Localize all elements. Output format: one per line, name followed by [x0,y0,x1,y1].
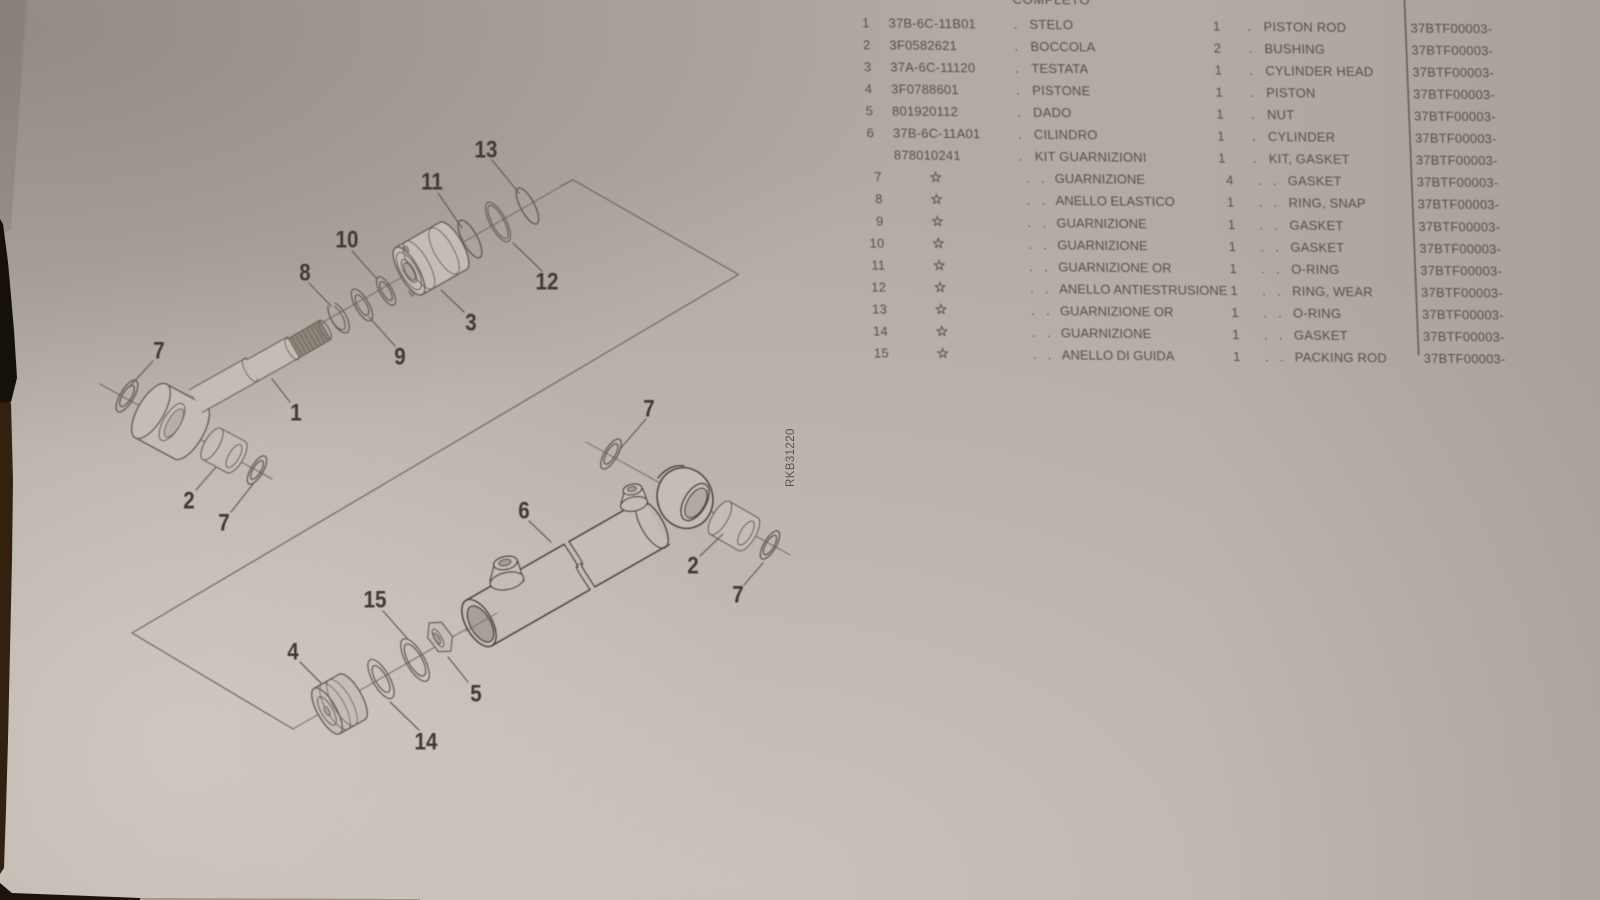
svg-text:3: 3 [864,59,872,74]
svg-text:6: 6 [518,497,529,524]
svg-text:GUARNIZIONE OR: GUARNIZIONE OR [1060,303,1174,319]
svg-text:5: 5 [470,680,481,707]
svg-text:37BTF00003-: 37BTF00003- [1422,307,1504,323]
svg-text:.: . [1016,83,1020,98]
svg-text:801920112: 801920112 [892,104,958,120]
svg-text:12: 12 [871,279,886,294]
svg-text:.: . [1025,171,1029,186]
svg-text:CILINDRO: CILINDRO [1034,127,1098,143]
svg-text:7: 7 [218,509,229,536]
svg-text:37BTF00003-: 37BTF00003- [1416,153,1498,169]
svg-text:PISTONE: PISTONE [1032,83,1091,99]
svg-text:.: . [1046,303,1050,318]
svg-text:37BTF00003-: 37BTF00003- [1412,65,1494,81]
svg-text:PACKING ROD: PACKING ROD [1294,349,1387,365]
svg-text:1: 1 [1215,85,1223,100]
svg-text:37BTF00003-: 37BTF00003- [1420,263,1502,279]
svg-text:O-RING: O-RING [1291,261,1340,276]
svg-text:5: 5 [865,103,873,118]
svg-text:.: . [1276,261,1280,276]
svg-text:.: . [1252,129,1256,144]
svg-text:.: . [1250,85,1254,100]
svg-text:ANELLO ANTIESTRUSIONE: ANELLO ANTIESTRUSIONE [1059,281,1228,298]
svg-text:.: . [1262,283,1266,298]
svg-text:ANELLO DI GUIDA: ANELLO DI GUIDA [1061,347,1175,363]
svg-text:9: 9 [876,213,884,228]
svg-text:7: 7 [643,395,654,422]
svg-text:37BTF00003-: 37BTF00003- [1419,241,1501,257]
svg-text:PISTON ROD: PISTON ROD [1263,19,1346,35]
svg-text:RING, SNAP: RING, SNAP [1288,195,1366,211]
svg-text:RING, WEAR: RING, WEAR [1292,283,1373,299]
svg-text:11: 11 [871,257,886,272]
svg-text:GUARNIZIONE: GUARNIZIONE [1054,171,1145,187]
svg-text:37BTF00003-: 37BTF00003- [1416,175,1498,191]
svg-text:.: . [1026,193,1030,208]
svg-text:7: 7 [874,169,882,184]
svg-text:878010241: 878010241 [894,148,961,164]
svg-text:COMPLETO: COMPLETO [1012,0,1090,7]
svg-text:.: . [1272,173,1276,188]
svg-text:DADO: DADO [1033,105,1072,120]
svg-text:.: . [1031,303,1035,318]
svg-text:1: 1 [290,399,301,426]
svg-text:.: . [1261,261,1265,276]
svg-text:.: . [1040,171,1044,186]
svg-text:1: 1 [1227,217,1235,232]
svg-text:37BTF00003-: 37BTF00003- [1410,21,1492,37]
svg-text:37B-6C-11A01: 37B-6C-11A01 [893,126,981,142]
svg-text:1: 1 [1218,151,1226,166]
svg-text:.: . [1032,325,1036,340]
svg-text:.: . [1273,195,1277,210]
svg-text:7: 7 [732,581,743,608]
svg-text:15: 15 [364,586,387,613]
svg-text:37BTF00003-: 37BTF00003- [1417,197,1499,213]
svg-text:6: 6 [866,125,874,140]
svg-text:37BTF00003-: 37BTF00003- [1421,285,1503,301]
svg-text:.: . [1275,239,1279,254]
svg-text:BOCCOLA: BOCCOLA [1030,39,1096,55]
svg-text:1: 1 [1229,261,1237,276]
svg-text:.: . [1257,173,1261,188]
svg-text:GUARNIZIONE OR: GUARNIZIONE OR [1058,259,1172,275]
svg-text:KIT, GASKET: KIT, GASKET [1269,151,1351,167]
svg-text:13: 13 [475,136,498,163]
svg-text:.: . [1043,237,1047,252]
svg-text:O-RING: O-RING [1293,305,1342,320]
svg-text:.: . [1017,105,1021,120]
svg-text:.: . [1279,327,1283,342]
svg-text:.: . [1044,259,1048,274]
svg-text:.: . [1015,61,1019,76]
svg-text:37BTF00003-: 37BTF00003- [1418,219,1500,235]
svg-text:37BTF00003-: 37BTF00003- [1413,87,1495,103]
svg-text:1: 1 [1216,107,1224,122]
svg-text:1: 1 [1228,239,1236,254]
svg-text:.: . [1264,327,1268,342]
svg-text:.: . [1029,259,1033,274]
svg-text:KIT GUARNIZIONI: KIT GUARNIZIONI [1035,149,1147,165]
svg-text:4: 4 [864,81,872,96]
svg-text:GASKET: GASKET [1289,217,1344,233]
svg-text:.: . [1251,107,1255,122]
svg-text:13: 13 [872,301,887,316]
svg-text:37BTF00003-: 37BTF00003- [1411,43,1493,59]
svg-text:.: . [1041,193,1045,208]
svg-text:1: 1 [1231,305,1239,320]
svg-text:.: . [1047,347,1051,362]
svg-text:GASKET: GASKET [1290,239,1345,255]
svg-text:GUARNIZIONE: GUARNIZIONE [1061,325,1152,341]
svg-text:.: . [1045,281,1049,296]
svg-text:.: . [1028,237,1032,252]
svg-text:3: 3 [465,309,476,336]
svg-text:.: . [1259,217,1263,232]
svg-text:14: 14 [873,323,888,338]
svg-text:10: 10 [336,226,359,253]
svg-text:1: 1 [1213,19,1221,34]
svg-text:8: 8 [875,191,883,206]
svg-text:ANELLO ELASTICO: ANELLO ELASTICO [1055,193,1175,209]
svg-text:3F0582621: 3F0582621 [889,38,957,54]
svg-text:.: . [1260,239,1264,254]
svg-text:GUARNIZIONE: GUARNIZIONE [1056,215,1147,231]
svg-text:NUT: NUT [1267,107,1295,122]
svg-text:.: . [1278,305,1282,320]
svg-text:.: . [1032,347,1036,362]
svg-text:.: . [1264,349,1268,364]
svg-text:1: 1 [1233,349,1241,364]
svg-text:.: . [1019,149,1023,164]
svg-text:.: . [1263,305,1267,320]
svg-text:.: . [1018,127,1022,142]
svg-text:1: 1 [1227,195,1235,210]
svg-text:8: 8 [299,259,310,286]
svg-text:PISTON: PISTON [1266,85,1316,100]
svg-text:9: 9 [394,343,405,370]
svg-text:.: . [1279,349,1283,364]
svg-text:37A-6C-11120: 37A-6C-11120 [890,60,976,76]
svg-text:1: 1 [1232,327,1240,342]
svg-text:1: 1 [1230,283,1238,298]
svg-text:4: 4 [287,638,299,665]
svg-text:.: . [1027,215,1031,230]
svg-text:4: 4 [1226,173,1234,188]
svg-text:.: . [1274,217,1278,232]
svg-text:GASKET: GASKET [1287,173,1342,189]
svg-text:STELO: STELO [1029,17,1073,32]
svg-text:37BTF00003-: 37BTF00003- [1423,329,1505,345]
svg-text:GUARNIZIONE: GUARNIZIONE [1057,237,1148,253]
svg-text:2: 2 [687,552,698,579]
svg-text:.: . [1014,39,1018,54]
svg-text:.: . [1042,215,1046,230]
svg-text:1: 1 [862,15,870,30]
svg-text:.: . [1047,325,1051,340]
svg-text:.: . [1248,41,1252,56]
svg-text:10: 10 [869,235,884,250]
svg-text:.: . [1249,63,1253,78]
svg-text:37B-6C-11B01: 37B-6C-11B01 [888,16,976,32]
svg-text:37BTF00003-: 37BTF00003- [1423,351,1505,367]
svg-text:15: 15 [874,345,889,360]
svg-text:.: . [1247,19,1251,34]
svg-text:.: . [1253,151,1257,166]
svg-text:.: . [1030,281,1034,296]
svg-text:.: . [1013,17,1017,32]
svg-text:3F0788601: 3F0788601 [891,82,959,98]
svg-text:2: 2 [863,37,871,52]
svg-text:TESTATA: TESTATA [1031,61,1089,77]
svg-text:14: 14 [415,728,438,755]
svg-text:11: 11 [421,168,443,195]
svg-text:1: 1 [1217,129,1225,144]
svg-text:GASKET: GASKET [1294,327,1349,343]
svg-text:1: 1 [1214,63,1222,78]
svg-text:12: 12 [536,268,559,295]
svg-text:2: 2 [1213,41,1221,56]
svg-text:7: 7 [153,337,164,364]
svg-text:CYLINDER: CYLINDER [1268,129,1336,145]
svg-text:2: 2 [183,487,194,514]
svg-text:BUSHING: BUSHING [1264,41,1325,57]
svg-text:37BTF00003-: 37BTF00003- [1415,131,1497,147]
svg-text:.: . [1277,283,1281,298]
svg-text:.: . [1258,195,1262,210]
svg-text:CYLINDER HEAD: CYLINDER HEAD [1265,63,1374,79]
svg-text:RKB31220: RKB31220 [785,428,797,487]
svg-text:37BTF00003-: 37BTF00003- [1414,109,1496,125]
